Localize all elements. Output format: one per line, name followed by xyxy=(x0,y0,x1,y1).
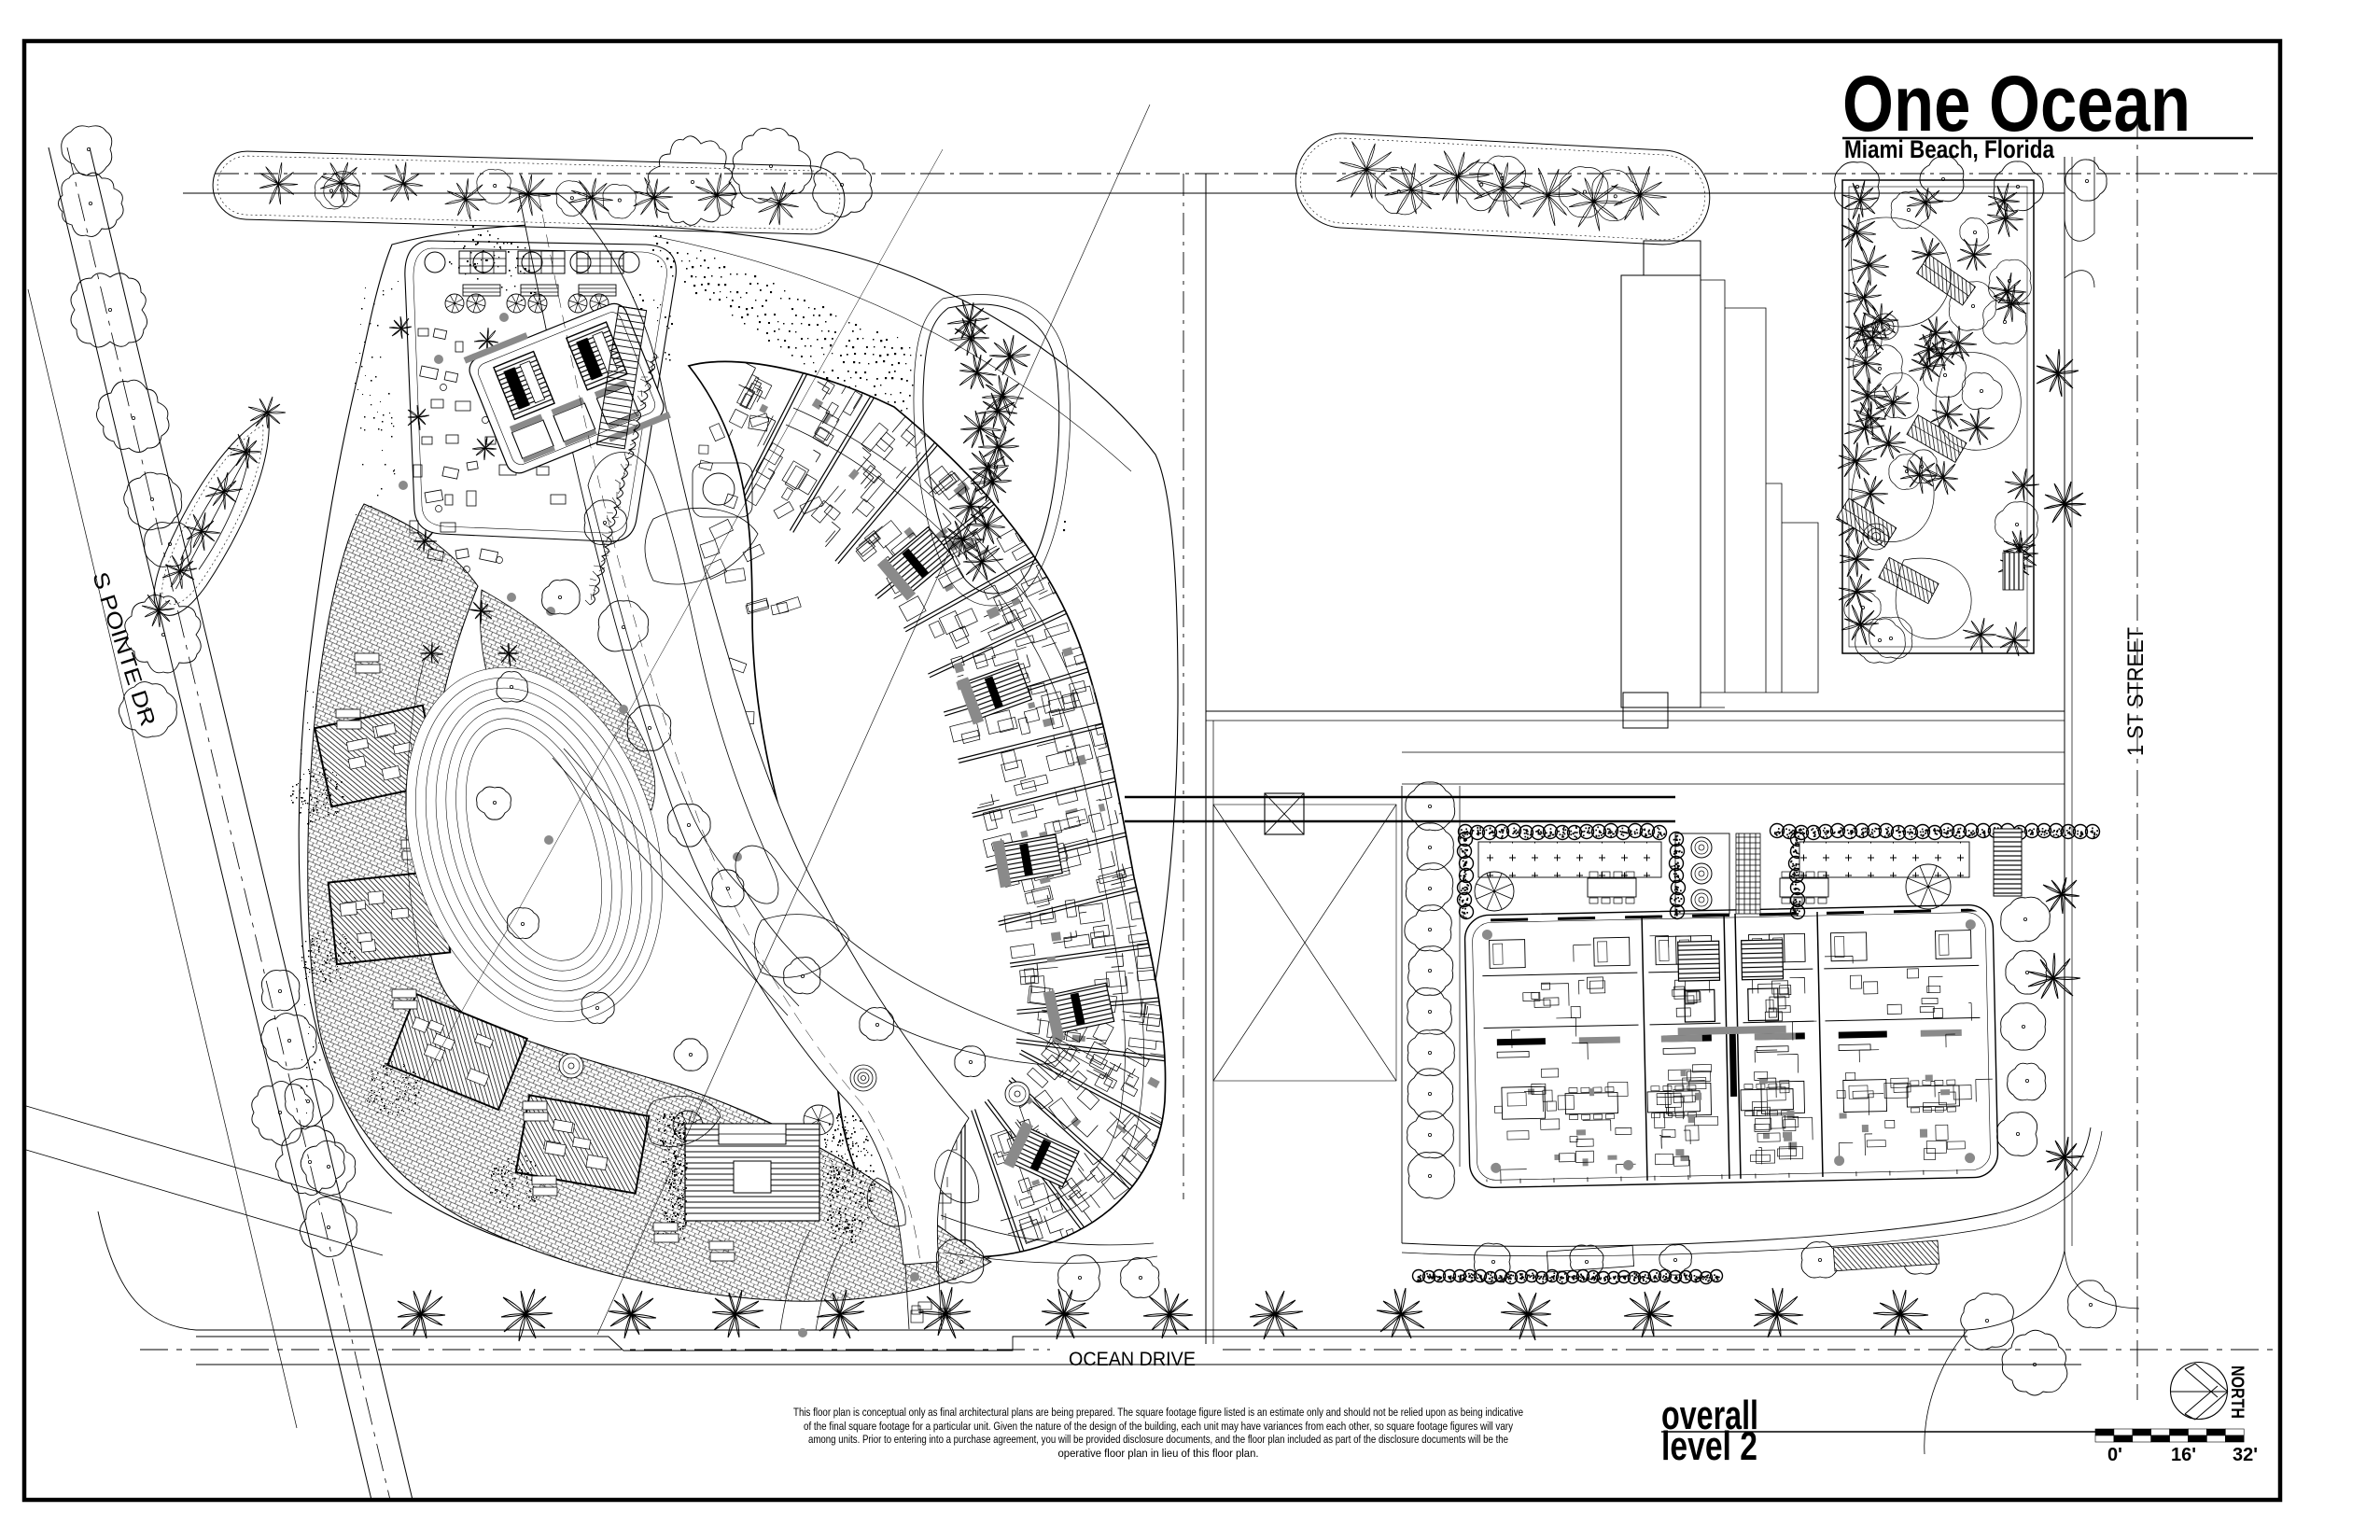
svg-text:among units. Prior to entering: among units. Prior to entering into a pu… xyxy=(808,1433,1508,1446)
svg-text:Miami Beach, Florida: Miami Beach, Florida xyxy=(1844,135,2054,163)
svg-text:OCEAN DRIVE: OCEAN DRIVE xyxy=(1069,1349,1196,1370)
svg-text:of the final square footage fo: of the final square footage for a partic… xyxy=(804,1420,1514,1433)
svg-text:This floor plan is conceptual: This floor plan is conceptual only as fi… xyxy=(793,1406,1523,1419)
svg-text:operative floor plan in lieu o: operative floor plan in lieu of this flo… xyxy=(1058,1447,1259,1460)
svg-text:1 ST STREET: 1 ST STREET xyxy=(2123,627,2149,756)
svg-text:level 2: level 2 xyxy=(1661,1423,1757,1469)
svg-text:32': 32' xyxy=(2233,1445,2258,1465)
svg-text:One Ocean: One Ocean xyxy=(1842,60,2191,147)
svg-text:16': 16' xyxy=(2171,1445,2196,1465)
svg-text:NORTH: NORTH xyxy=(2227,1365,2247,1419)
svg-text:0': 0' xyxy=(2107,1445,2122,1465)
